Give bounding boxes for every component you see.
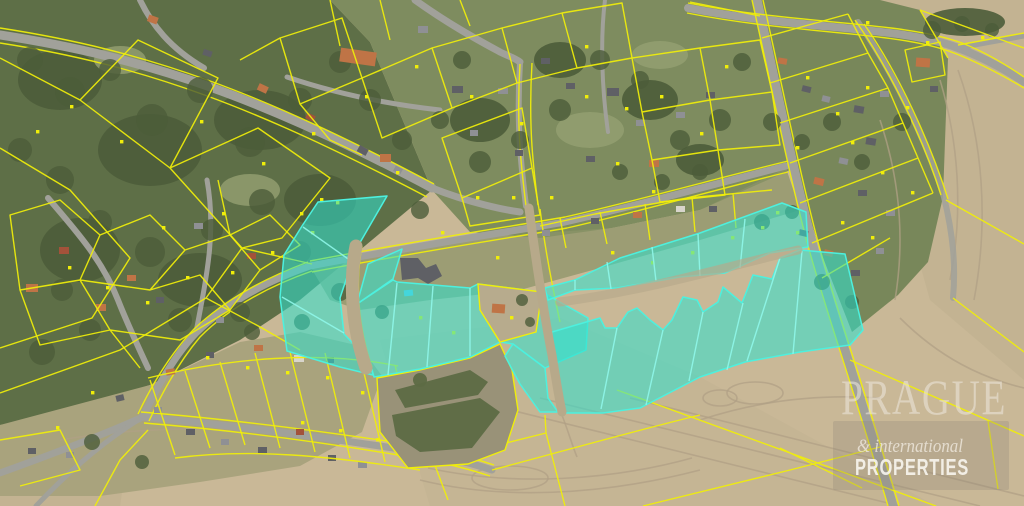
cadastral-map-image[interactable]: PRAGUE & international PROPERTIES	[0, 0, 1024, 506]
watermark: PRAGUE & international PROPERTIES	[833, 369, 1009, 490]
aerial-cadastral-map: PRAGUE & international PROPERTIES	[0, 0, 1024, 506]
watermark-brand-top: PRAGUE	[841, 369, 1007, 425]
watermark-brand-bottom: PROPERTIES	[855, 454, 969, 480]
